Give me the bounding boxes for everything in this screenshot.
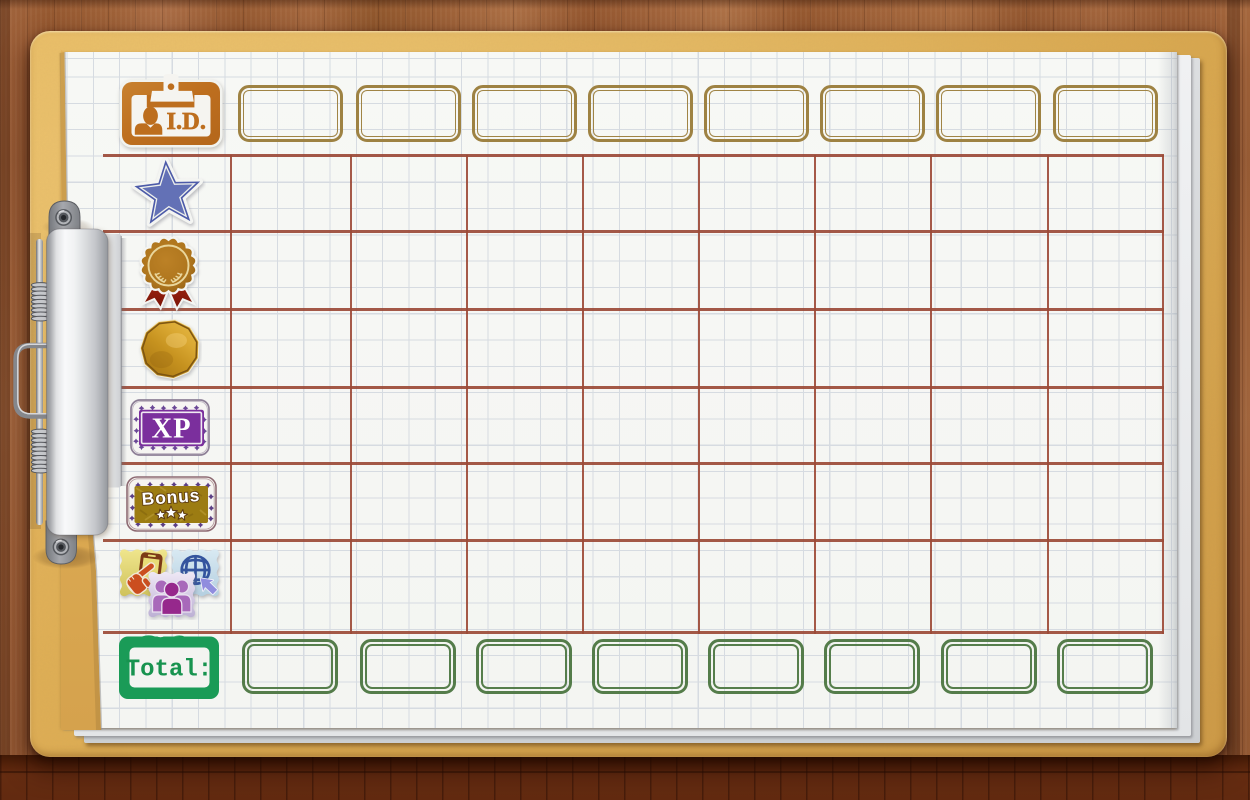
svg-text:XP: XP: [152, 414, 192, 445]
svg-text:Total:: Total:: [126, 657, 212, 684]
svg-text:Bonus: Bonus: [141, 485, 201, 509]
svg-text:I.D.: I.D.: [167, 108, 206, 135]
